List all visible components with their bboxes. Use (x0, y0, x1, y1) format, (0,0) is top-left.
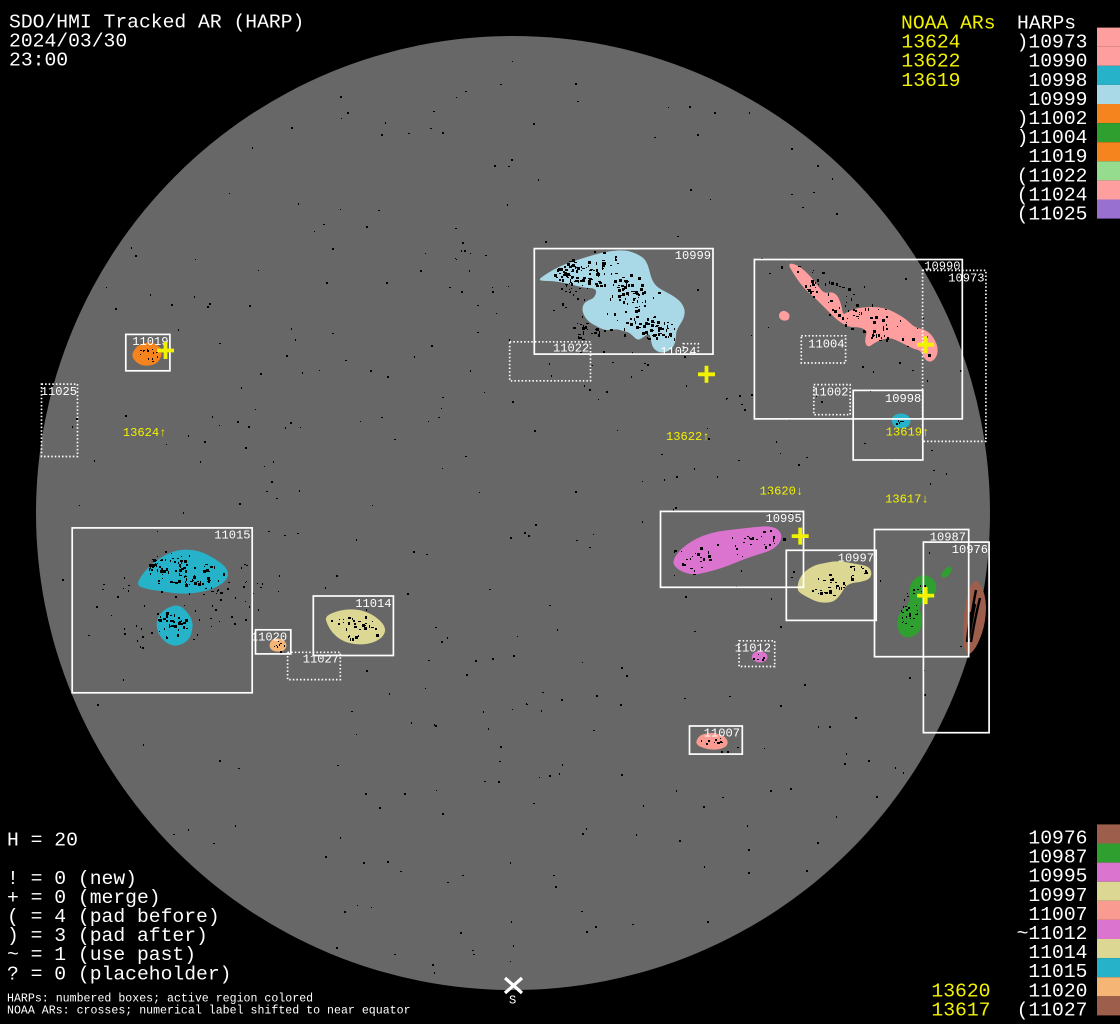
svg-text:(11027: (11027 (1017, 999, 1088, 1021)
svg-text:11025: 11025 (41, 385, 77, 399)
svg-text:? = 0 (placeholder): ? = 0 (placeholder) (7, 963, 231, 985)
svg-text:10973: 10973 (948, 271, 984, 285)
svg-text:10976: 10976 (952, 543, 988, 557)
svg-text:11007: 11007 (704, 727, 740, 741)
svg-text:10997: 10997 (838, 551, 874, 565)
svg-text:11020: 11020 (251, 631, 287, 645)
svg-text:13624↑: 13624↑ (123, 426, 167, 440)
svg-text:11002: 11002 (812, 385, 848, 399)
svg-text:11022: 11022 (553, 342, 589, 356)
svg-text:NOAA ARs: crosses; numerical l: NOAA ARs: crosses; numerical label shift… (7, 1005, 411, 1018)
svg-text:23:00: 23:00 (9, 50, 68, 72)
svg-text:H = 20: H = 20 (7, 830, 78, 852)
svg-text:13617: 13617 (931, 999, 990, 1021)
svg-text:13620↓: 13620↓ (760, 484, 804, 498)
svg-text:11004: 11004 (808, 337, 844, 351)
svg-text:11027: 11027 (303, 652, 339, 666)
svg-text:13619: 13619 (901, 70, 960, 92)
svg-text:10999: 10999 (675, 249, 711, 263)
svg-text:13619↑: 13619↑ (886, 425, 930, 439)
svg-text:13617↓: 13617↓ (885, 492, 929, 506)
svg-text:11019: 11019 (132, 335, 168, 349)
svg-text:11012: 11012 (735, 641, 771, 655)
svg-text:11015: 11015 (214, 529, 250, 543)
svg-text:10998: 10998 (885, 392, 921, 406)
svg-text:(11025: (11025 (1017, 204, 1088, 226)
svg-text:11024: 11024 (660, 345, 696, 359)
svg-text:13622↑: 13622↑ (666, 430, 710, 444)
svg-text:S: S (509, 994, 516, 1008)
svg-text:10995: 10995 (766, 512, 802, 526)
svg-text:11014: 11014 (355, 597, 391, 611)
